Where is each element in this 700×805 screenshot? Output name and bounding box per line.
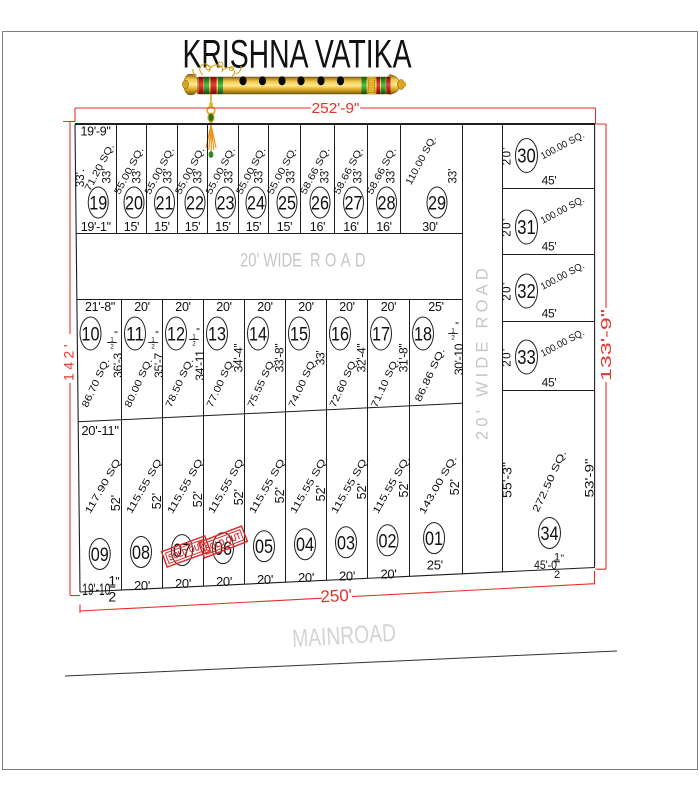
svg-text:2: 2 — [108, 589, 116, 605]
svg-text:20': 20' — [216, 300, 231, 314]
svg-text:30: 30 — [517, 146, 536, 168]
svg-text:": " — [115, 575, 119, 589]
svg-text:31'-8": 31'-8" — [397, 344, 411, 373]
svg-text:20': 20' — [134, 578, 150, 593]
svg-text:": " — [455, 321, 459, 332]
svg-text:133'-9": 133'-9" — [598, 309, 615, 381]
svg-text:20': 20' — [380, 566, 396, 581]
svg-text:20': 20' — [175, 300, 190, 314]
svg-text:33: 33 — [517, 347, 536, 369]
svg-text:20': 20' — [257, 300, 272, 314]
svg-text:MAINROAD: MAINROAD — [291, 619, 396, 653]
svg-text:16: 16 — [331, 325, 349, 346]
svg-text:20': 20' — [175, 576, 191, 591]
svg-text:22: 22 — [186, 194, 204, 215]
svg-text:16': 16' — [310, 220, 325, 234]
svg-text:33': 33' — [254, 169, 266, 184]
svg-text:26: 26 — [311, 194, 329, 215]
svg-text:20': 20' — [298, 570, 314, 585]
svg-text:25': 25' — [427, 558, 443, 573]
svg-text:2: 2 — [451, 335, 455, 342]
svg-text:35'-7: 35'-7 — [152, 352, 166, 377]
svg-text:2: 2 — [110, 344, 114, 351]
svg-text:15': 15' — [215, 220, 230, 234]
svg-text:33': 33' — [286, 169, 298, 184]
svg-text:52': 52' — [150, 493, 164, 509]
svg-text:52': 52' — [232, 489, 246, 505]
svg-text:33': 33' — [320, 169, 332, 184]
svg-text:53'-9": 53'-9" — [582, 459, 596, 498]
svg-text:52': 52' — [314, 485, 328, 501]
svg-text:27: 27 — [345, 194, 363, 215]
svg-text:23: 23 — [217, 194, 235, 215]
svg-text:15': 15' — [185, 220, 200, 234]
svg-text:20': 20' — [502, 146, 514, 166]
svg-text:15': 15' — [154, 220, 169, 234]
svg-text:55'-3": 55'-3" — [500, 462, 515, 498]
svg-text:252'-9": 252'-9" — [312, 100, 360, 117]
svg-text:33': 33' — [353, 169, 365, 184]
svg-text:20': 20' — [381, 300, 396, 314]
svg-text:11: 11 — [126, 325, 144, 346]
svg-text:20' WIDE ROAD: 20' WIDE ROAD — [474, 264, 492, 440]
svg-text:20'-11": 20'-11" — [81, 423, 119, 438]
svg-text:52': 52' — [273, 487, 287, 503]
svg-text:17: 17 — [372, 325, 390, 346]
svg-text:15': 15' — [246, 220, 261, 234]
svg-text:45': 45' — [542, 174, 557, 188]
svg-text:20: 20 — [125, 194, 143, 215]
svg-text:33': 33' — [163, 169, 175, 184]
svg-text:29: 29 — [428, 194, 446, 215]
svg-text:30': 30' — [422, 220, 437, 234]
svg-text:33': 33' — [193, 169, 205, 184]
svg-text:16': 16' — [376, 220, 391, 234]
svg-text:20': 20' — [298, 300, 313, 314]
svg-text:15': 15' — [277, 220, 292, 234]
svg-text:ROAD: ROAD — [310, 250, 370, 272]
svg-text:19: 19 — [89, 194, 107, 215]
svg-text:33': 33' — [102, 169, 114, 184]
svg-text:34: 34 — [541, 524, 559, 545]
svg-text:20': 20' — [502, 217, 514, 237]
svg-text:14: 14 — [249, 325, 267, 346]
svg-text:16': 16' — [343, 220, 358, 234]
svg-text:33': 33' — [132, 169, 144, 184]
svg-text:08: 08 — [132, 543, 150, 564]
svg-text:52': 52' — [191, 491, 205, 507]
svg-text:20': 20' — [257, 572, 273, 587]
svg-text:20': 20' — [502, 281, 514, 301]
svg-text:33': 33' — [386, 169, 398, 184]
svg-text:52': 52' — [448, 479, 462, 495]
svg-text:05: 05 — [255, 537, 273, 558]
svg-text:15': 15' — [124, 220, 139, 234]
svg-text:12: 12 — [167, 325, 185, 346]
svg-text:19'-1": 19'-1" — [81, 220, 111, 234]
svg-text:25': 25' — [428, 300, 443, 314]
svg-text:45': 45' — [542, 240, 557, 254]
svg-text:": " — [155, 330, 159, 341]
svg-text:142': 142' — [61, 341, 77, 381]
svg-text:": " — [114, 330, 118, 341]
svg-text:13: 13 — [208, 325, 226, 346]
svg-text:09: 09 — [91, 545, 109, 566]
svg-text:45': 45' — [542, 307, 557, 321]
svg-text:52': 52' — [397, 481, 411, 497]
svg-text:52': 52' — [109, 495, 123, 511]
svg-text:2: 2 — [151, 344, 155, 351]
svg-text:2: 2 — [554, 569, 560, 581]
svg-text:20': 20' — [339, 568, 355, 583]
svg-text:01: 01 — [425, 529, 443, 550]
svg-text:04: 04 — [296, 535, 314, 556]
svg-text:32: 32 — [517, 281, 536, 303]
svg-text:KRISHNA VATIKA: KRISHNA VATIKA — [183, 33, 412, 77]
svg-text:52': 52' — [355, 483, 369, 499]
svg-text:31: 31 — [517, 217, 536, 239]
svg-text:250': 250' — [320, 586, 353, 607]
svg-text:19'-10: 19'-10 — [82, 581, 110, 599]
svg-text:25: 25 — [278, 194, 296, 215]
svg-text:33': 33' — [224, 169, 236, 184]
svg-text:21: 21 — [156, 194, 174, 215]
svg-text:03: 03 — [337, 533, 355, 554]
svg-text:02: 02 — [379, 531, 397, 552]
svg-text:": " — [196, 327, 200, 338]
svg-text:36'-3: 36'-3 — [111, 352, 125, 377]
svg-text:19'-9": 19'-9" — [80, 125, 110, 139]
svg-text:34'-11: 34'-11 — [193, 350, 207, 381]
svg-text:20': 20' — [502, 347, 514, 367]
svg-text:28: 28 — [378, 194, 396, 215]
svg-text:21'-8": 21'-8" — [85, 300, 115, 314]
svg-text:20': 20' — [216, 574, 232, 589]
svg-text:18: 18 — [414, 325, 432, 346]
svg-text:24: 24 — [247, 194, 265, 215]
svg-text:15: 15 — [290, 325, 308, 346]
svg-text:33': 33' — [448, 169, 460, 184]
svg-text:45': 45' — [542, 376, 557, 390]
svg-text:30'-10: 30'-10 — [452, 343, 466, 375]
svg-text:20': 20' — [134, 300, 149, 314]
svg-text:20' WIDE: 20' WIDE — [240, 250, 302, 272]
svg-text:2: 2 — [192, 341, 196, 348]
svg-text:10: 10 — [82, 325, 100, 346]
svg-text:20': 20' — [339, 300, 354, 314]
svg-text:": " — [561, 554, 565, 565]
